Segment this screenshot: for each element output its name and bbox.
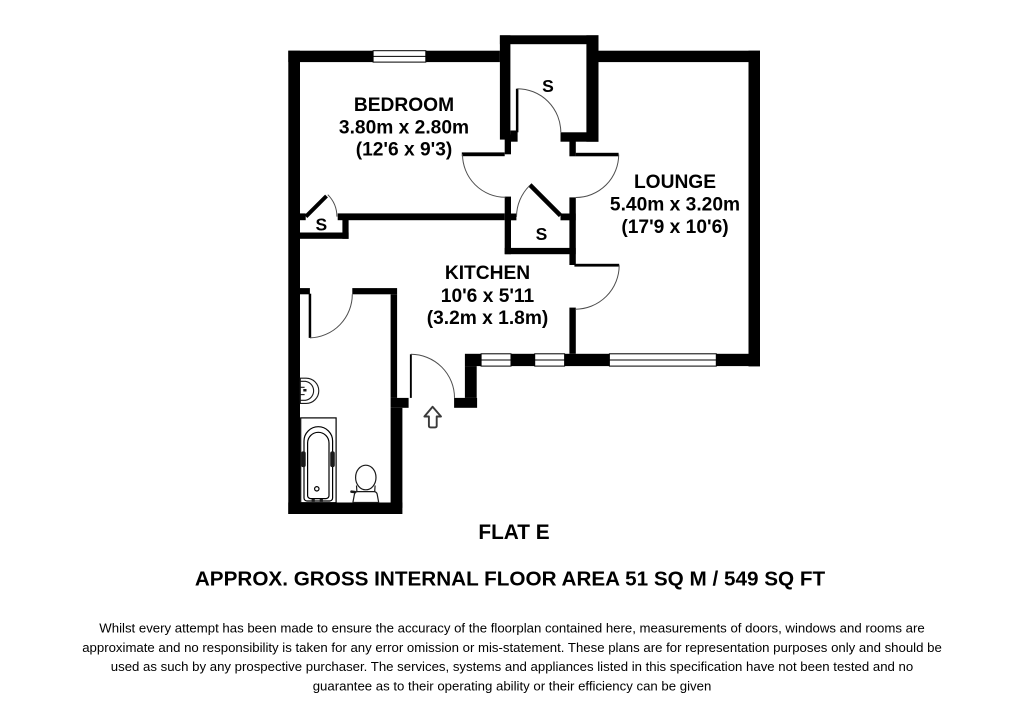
svg-text:LOUNGE: LOUNGE <box>634 172 716 193</box>
svg-text:S: S <box>315 215 327 235</box>
svg-text:S: S <box>542 76 554 96</box>
svg-text:Whilst every attempt has been: Whilst every attempt has been made to en… <box>99 621 924 636</box>
svg-text:10'6 x 5'11: 10'6 x 5'11 <box>441 286 535 307</box>
svg-text:S: S <box>536 224 548 244</box>
svg-text:BEDROOM: BEDROOM <box>354 95 454 116</box>
svg-text:3.80m x 2.80m: 3.80m x 2.80m <box>339 117 469 138</box>
svg-text:approximate and no responsibil: approximate and no responsibility is tak… <box>82 640 942 655</box>
svg-text:(17'9 x 10'6): (17'9 x 10'6) <box>621 217 728 238</box>
svg-text:guarantee as to their operatin: guarantee as to their operating ability … <box>313 679 712 694</box>
svg-text:5.40m x 3.20m: 5.40m x 3.20m <box>610 195 740 216</box>
svg-text:(3.2m x 1.8m): (3.2m x 1.8m) <box>427 308 549 329</box>
svg-text:FLAT E: FLAT E <box>478 521 549 544</box>
svg-text:APPROX. GROSS INTERNAL FLOOR A: APPROX. GROSS INTERNAL FLOOR AREA 51 SQ … <box>195 568 826 591</box>
svg-text:KITCHEN: KITCHEN <box>445 263 530 284</box>
svg-text:(12'6 x 9'3): (12'6 x 9'3) <box>356 140 453 161</box>
svg-text:used as such by any prospectiv: used as such by any prospective purchase… <box>111 659 913 674</box>
